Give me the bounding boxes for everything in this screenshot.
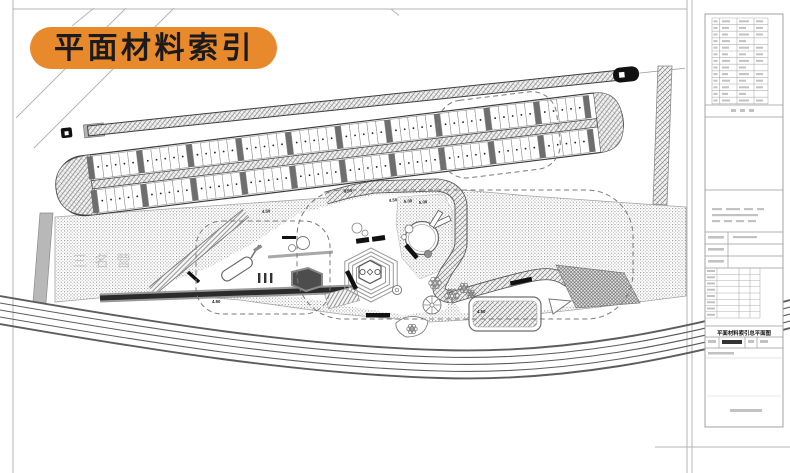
drawing-title: 平面材料索引总平面图: [717, 329, 772, 337]
paved-platform: [469, 297, 541, 331]
spot-elevation-label: 5.00: [419, 199, 428, 205]
road-marker: [612, 66, 639, 84]
spot-elevation-label: 4.50: [212, 299, 221, 304]
spot-elevation-label: 4.50: [389, 197, 398, 203]
left-road-band: [33, 213, 53, 303]
spot-elevation-label: 4.50: [262, 208, 271, 214]
spot-elevation-label: 4.50: [477, 309, 486, 314]
page-title: 平面材料索引: [54, 32, 255, 65]
right-road-band: [653, 66, 672, 205]
page-title-pill: 平面材料索引: [30, 27, 277, 69]
watermark-text: 三名营: [72, 253, 138, 270]
drawing-sheet: 三名营: [0, 0, 790, 473]
site-plan-canvas: 三名营: [0, 0, 790, 473]
spot-elevation-label: 5.00: [404, 198, 413, 204]
title-block: 平面材料索引总平面图: [705, 14, 783, 427]
